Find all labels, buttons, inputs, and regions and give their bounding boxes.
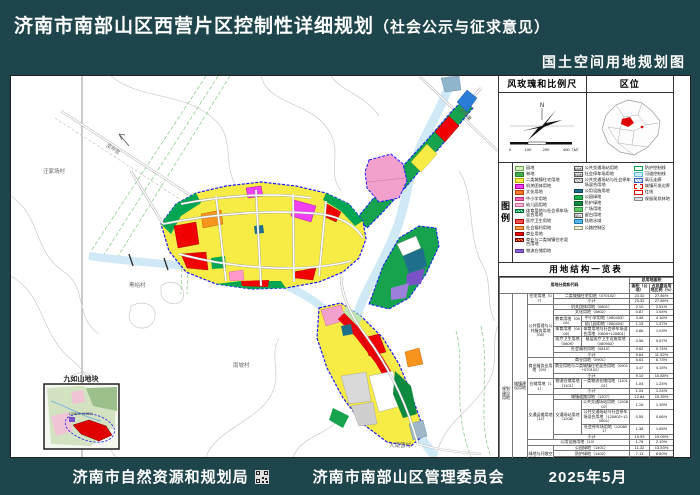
legend-label: 红线: [645, 190, 653, 195]
legend-column: 防护控制线河道控制线高压走廊城镇开发边界红线保留现状林地: [634, 166, 672, 261]
table-cell: 教育用地（0804）: [554, 315, 582, 326]
scale-label: 400（M）: [563, 147, 581, 152]
scale-bar: 0 100 200 400（M）: [509, 142, 581, 152]
legend-label: 陆地水域: [585, 219, 602, 224]
legend-swatch: [515, 232, 524, 237]
legend-swatch: [515, 190, 524, 195]
legend-item: 社会福利用地: [515, 226, 572, 231]
qr-seal-icon: [255, 470, 269, 484]
legend-item: 医疗卫生用地: [515, 219, 572, 224]
legend-swatch: 1208: [574, 166, 583, 171]
table-cell: 物流仓储用地（1101）: [554, 379, 582, 389]
table-header-cell: 占总建设用地比例（%）: [650, 283, 674, 293]
table-cell: 绿地与开敞空间用地（14）: [528, 445, 554, 458]
legend-item: 防护控制线: [634, 166, 672, 171]
legend-item: 商业用地: [515, 232, 572, 237]
table-cell: 住宅用地（07）: [528, 293, 554, 304]
legend-item: 物流仓储用地: [515, 249, 572, 254]
inset-map: 九如山地块 120802+120801: [44, 374, 119, 449]
map-canvas: 汪家场村 黑峪村 南坡村 大南营村 至黄巢 至仲宫 九如山地块 120802+1…: [11, 76, 498, 457]
inset-code-label: 120802+120801: [69, 412, 94, 416]
legend-swatch: [634, 197, 643, 202]
table-cell: 交通场站用地（1208）: [554, 400, 582, 434]
legend-label: 商业与二类城镇住宅混合用地: [526, 238, 572, 247]
plan-sheet: 汪家场村 黑峪村 南坡村 大南营村 至黄巢 至仲宫 九如山地块 120802+1…: [10, 75, 691, 458]
legend-swatch: [515, 172, 524, 177]
legend-swatch: [515, 203, 524, 208]
table-cell: 3.47: [630, 363, 650, 373]
table-cell: 1.24%: [650, 379, 674, 389]
legend-swatch: [634, 184, 643, 189]
legend-item: 1208公共交通场站用地: [574, 166, 632, 171]
windrose-panel-title: 风玫瑰和比例尺: [499, 76, 586, 93]
legend-item: 公园绿地: [574, 195, 632, 200]
legend-item: 公用设施用地: [574, 189, 632, 194]
legend-swatch: [515, 166, 524, 171]
legend-item: 幼儿园用地: [515, 203, 572, 208]
legend-item: 中小学用地: [515, 197, 572, 202]
legend-item: 商业与二类城镇住宅混合用地: [515, 238, 572, 247]
landuse-table-panel: 用地结构一览表 用地分类和代码总用地面积面积（公顷）占总建设用地比例（%）规划建…: [499, 263, 673, 458]
legend-swatch: [515, 178, 524, 183]
legend-label: 中小学用地: [526, 197, 547, 202]
table-cell: 1.65%: [650, 424, 674, 434]
legend-swatch: [634, 190, 643, 195]
table-cell: 仓储用地（11）: [528, 379, 554, 395]
landuse-table-title: 用地结构一览表: [499, 263, 673, 277]
map-sheet-subtitle: 国土空间用地规划图: [542, 52, 686, 72]
legend-swatch: [574, 201, 583, 206]
legend-item: 红线: [634, 190, 672, 195]
location-minimap: [590, 97, 670, 159]
legend-swatch: [515, 184, 524, 189]
legend-swatch: [574, 207, 583, 212]
legend-swatch: [574, 226, 583, 231]
legend-swatch: 1208: [574, 172, 583, 177]
footer-org1: 济南市自然资源和规划局: [73, 466, 249, 487]
legend-swatch: [515, 197, 524, 202]
table-cell: 4.15%: [650, 363, 674, 373]
plan-title-note: （社会公示与征求意见）: [374, 19, 550, 36]
legend-swatch: [574, 219, 583, 224]
legend-label: 体育用地与社会停车场混合用地: [526, 209, 572, 218]
inset-title: 九如山地块: [63, 374, 100, 383]
legend-swatch: [515, 238, 524, 243]
legend-label: 公园绿地: [585, 195, 602, 200]
legend-label: 公用设施用地: [585, 189, 610, 194]
legend-item: 体育用地与社会停车场混合用地: [515, 209, 572, 218]
legend-item: 保留现状林地: [634, 197, 672, 202]
legend-swatch: [515, 226, 524, 231]
table-cell: 公共交通场站与社会停车场混合用地（120802+120801）: [582, 410, 630, 424]
legend-item: 陆地水域: [574, 219, 632, 224]
legend-label: 园地: [526, 166, 534, 171]
legend-label: 公路控制区: [585, 226, 606, 231]
legend-label: 防护控制线: [645, 166, 666, 171]
table-cell: 基层医疗卫生设施用地（080902）: [582, 337, 630, 347]
footer-org2: 济南市南部山区管理委员会: [313, 466, 505, 487]
wind-rose-icon: N 0 100 200 400（M）: [500, 98, 584, 158]
legend-swatch: [574, 195, 583, 200]
legend-item: 机关团体用地: [515, 184, 572, 189]
landuse-table: 用地分类和代码总用地面积面积（公顷）占总建设用地比例（%）规划建设用地城镇建设用…: [499, 277, 673, 458]
table-cell: 0.67%: [650, 337, 674, 347]
legend-swatch: [634, 166, 643, 171]
table-cell: 交通运输用地（12）: [528, 394, 554, 439]
legend-items: 园地林地二类城镇住宅用地机关团体用地文化用地中小学用地幼儿园用地体育用地与社会停…: [513, 163, 673, 262]
legend-panel: 图例 园地林地二类城镇住宅用地机关团体用地文化用地中小学用地幼儿园用地体育用地与…: [499, 163, 673, 263]
legend-swatch: [574, 189, 583, 194]
legend-column: 园地林地二类城镇住宅用地机关团体用地文化用地中小学用地幼儿园用地体育用地与社会停…: [515, 166, 572, 261]
table-header-cell: 面积（公顷）: [630, 283, 650, 293]
legend-swatch: [515, 249, 524, 254]
table-cell: 商业用地与二类城镇住宅混合用地（0901+070102）: [554, 363, 630, 373]
scale-label: 100: [525, 147, 532, 152]
legend-swatch: 留白: [574, 213, 583, 218]
windrose-panel: 风玫瑰和比例尺 N 0 100 200: [499, 76, 586, 162]
planning-map: 汪家场村 黑峪村 南坡村 大南营村 至黄巢 至仲宫 九如山地块 120802+1…: [11, 76, 498, 457]
legend-label: 文化用地: [526, 190, 543, 195]
table-cell: 0.55: [630, 410, 650, 424]
info-panel: 风玫瑰和比例尺 N 0 100 200: [498, 76, 674, 457]
legend-item: 防护绿地: [574, 201, 632, 206]
legend-item: 公共交通场站与社会停车场混合用地: [574, 178, 632, 187]
table-cell: 公共管理与公共服务用地（08）: [528, 304, 554, 357]
legend-label: 公共交通场站与社会停车场混合用地: [585, 178, 632, 187]
table-header-cell: 用地分类和代码: [500, 278, 630, 294]
legend-label: 物流仓储用地: [526, 249, 551, 254]
legend-swatch: [515, 209, 524, 214]
table-cell: 1.39%: [650, 400, 674, 410]
map-label-village: 南坡村: [233, 361, 250, 369]
scale-label: 0: [509, 147, 512, 152]
map-label-village: 大南营村: [389, 441, 412, 449]
table-cell: 0.56: [630, 337, 650, 347]
footer-bar: 济南市自然资源和规划局 济南市南部山区管理委员会 2025年5月: [0, 458, 700, 495]
table-cell: 规划建设用地: [500, 293, 513, 458]
scale-label: 200: [543, 147, 550, 152]
location-panel: 区位: [586, 76, 674, 162]
table-cell: 商业服务业用地（09）: [528, 358, 554, 379]
legend-panel-title: 图例: [499, 163, 513, 262]
legend-item: 留白留白用地: [574, 213, 632, 218]
location-panel-title: 区位: [587, 76, 674, 93]
table-cell: 医疗卫生用地（0809）: [554, 337, 582, 347]
table-cell: 0.66%: [650, 410, 674, 424]
table-cell: 1.38: [630, 424, 650, 434]
page-title: 济南市南部山区西营片区控制性详细规划（社会公示与征求意见）: [14, 11, 550, 38]
table-cell: 0.86: [630, 327, 650, 337]
legend-label: 幼儿园用地: [526, 203, 547, 208]
table-cell: 1.03%: [650, 327, 674, 337]
legend-item: 公路控制区: [574, 226, 632, 231]
table-cell: 1.04: [630, 379, 650, 389]
legend-label: 商业用地: [526, 232, 543, 237]
legend-label: 保留现状林地: [645, 197, 670, 202]
legend-swatch: [515, 219, 524, 224]
legend-item: 园地: [515, 166, 572, 171]
legend-swatch: [634, 172, 643, 177]
plan-title: 济南市南部山区西营片区控制性详细规划: [14, 16, 374, 37]
map-label-village: 汪家场村: [43, 167, 66, 175]
legend-label: 社会福利用地: [526, 226, 551, 231]
legend-item: 广场用地: [574, 207, 632, 212]
table-cell: 城镇建设用地: [513, 293, 528, 458]
legend-label: 公共交通场站用地: [585, 166, 619, 171]
legend-swatch: [634, 178, 643, 183]
footer-date: 2025年5月: [549, 466, 628, 487]
map-label-village: 黑峪村: [129, 281, 146, 289]
legend-column: 1208公共交通场站用地1208社会停车场用地公共交通场站与社会停车场混合用地公…: [574, 166, 632, 261]
legend-swatch: [574, 178, 583, 183]
legend-label: 医疗卫生用地: [526, 219, 551, 224]
table-cell: 1.16: [630, 400, 650, 410]
table-cell: 社会停车场用地（120801）: [582, 424, 630, 434]
legend-item: 文化用地: [515, 190, 572, 195]
